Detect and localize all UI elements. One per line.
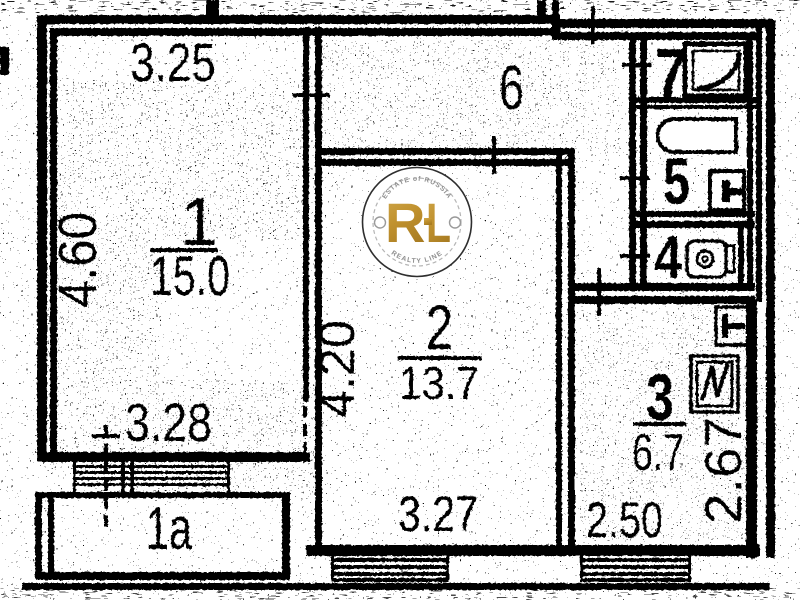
svg-text:5: 5 — [663, 144, 690, 218]
svg-text:15.0: 15.0 — [150, 244, 230, 307]
svg-text:7: 7 — [655, 34, 687, 112]
svg-text:R: R — [385, 191, 425, 254]
svg-text:4.60: 4.60 — [48, 212, 108, 308]
svg-text:4: 4 — [654, 224, 683, 291]
svg-text:3.25: 3.25 — [130, 33, 216, 93]
svg-text:6.7: 6.7 — [632, 424, 684, 482]
svg-text:4.20: 4.20 — [309, 320, 365, 418]
svg-text:3.28: 3.28 — [125, 393, 212, 453]
svg-text:2: 2 — [426, 293, 453, 363]
svg-text:6: 6 — [499, 54, 524, 123]
svg-text:3.27: 3.27 — [398, 486, 478, 542]
svg-text:13.7: 13.7 — [399, 357, 479, 409]
svg-text:2.50: 2.50 — [586, 492, 663, 548]
svg-text:2.67: 2.67 — [695, 417, 753, 524]
svg-text:1a: 1a — [146, 495, 192, 562]
